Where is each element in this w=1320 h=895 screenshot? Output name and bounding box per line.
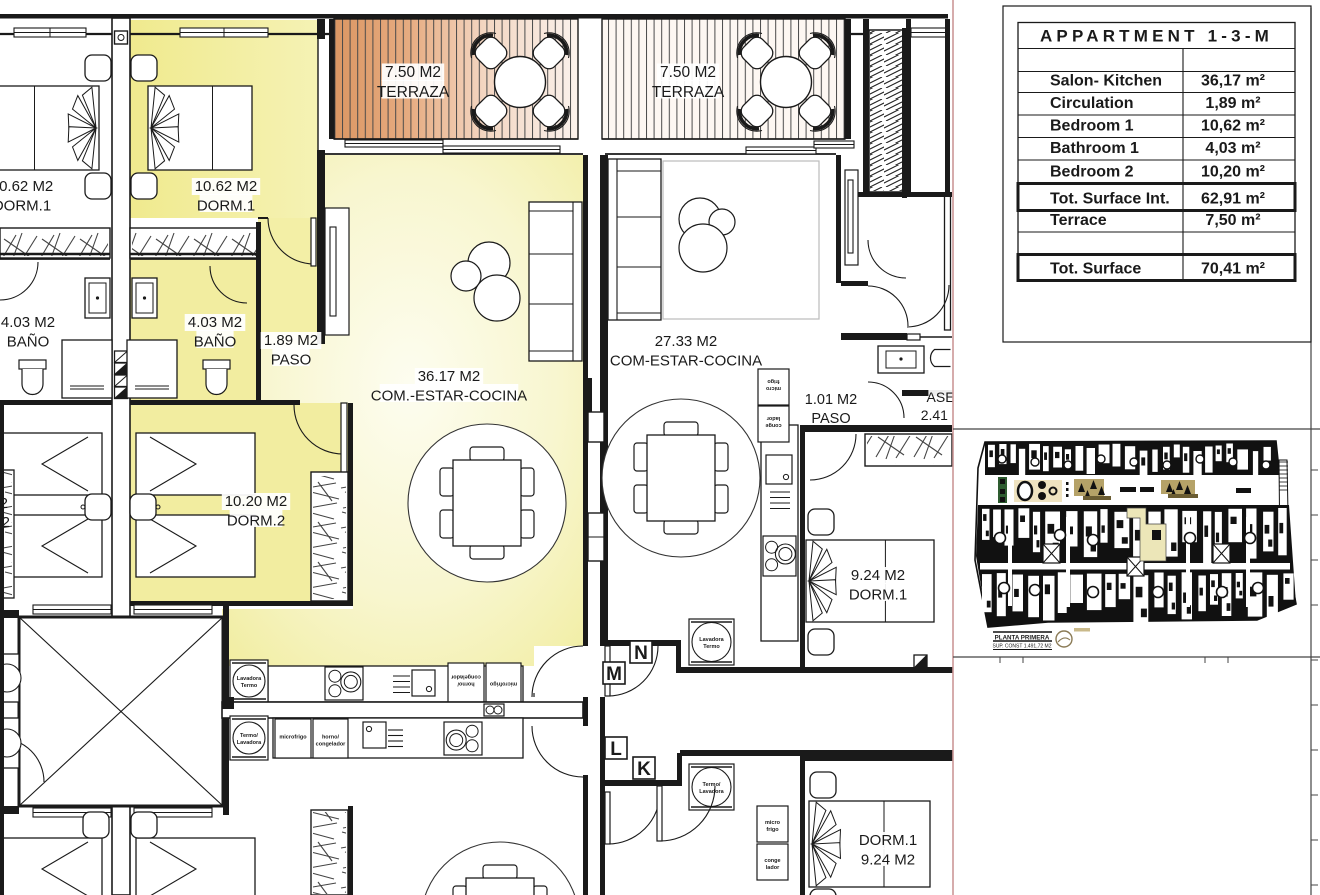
svg-text:BAÑO: BAÑO [194, 334, 237, 351]
svg-text:K: K [637, 759, 651, 780]
svg-text:27.33 M2: 27.33 M2 [655, 333, 718, 350]
svg-text:PASO: PASO [271, 352, 312, 369]
svg-text:ASEO: ASEO [927, 389, 966, 405]
svg-text:micro: micro [765, 820, 781, 826]
svg-text:N: N [634, 643, 648, 664]
svg-text:7.50 M2: 7.50 M2 [385, 64, 441, 81]
svg-text:Bathroom 1: Bathroom 1 [1050, 140, 1139, 157]
svg-text:Lavadora: Lavadora [237, 676, 262, 682]
svg-text:Bedroom 2: Bedroom 2 [1050, 164, 1134, 181]
svg-text:2: 2 [2, 514, 10, 531]
svg-text:conge: conge [764, 858, 780, 864]
svg-text:Bedroom 1: Bedroom 1 [1050, 118, 1134, 135]
svg-text:congelador: congelador [316, 742, 347, 748]
svg-text:70,41 m²: 70,41 m² [1201, 261, 1265, 278]
svg-text:Lavadora: Lavadora [699, 789, 724, 795]
svg-text:4.03 M2: 4.03 M2 [188, 314, 242, 331]
svg-text:DORM.1: DORM.1 [849, 587, 907, 604]
svg-text:lador: lador [766, 415, 780, 421]
svg-text:frigo: frigo [766, 827, 779, 833]
svg-text:PASO: PASO [811, 411, 850, 427]
svg-text:horno/: horno/ [322, 735, 340, 741]
svg-text:Salon- Kitchen: Salon- Kitchen [1050, 73, 1162, 90]
svg-text:Tot. Surface: Tot. Surface [1050, 261, 1141, 278]
svg-text:Lavadora: Lavadora [237, 740, 262, 746]
svg-text:SUP. CONST 1.491,72 M2: SUP. CONST 1.491,72 M2 [992, 644, 1051, 650]
svg-text:10.62 M2: 10.62 M2 [195, 178, 258, 195]
svg-text:9.24 M2: 9.24 M2 [851, 567, 905, 584]
svg-text:microfrigo: microfrigo [489, 681, 517, 687]
svg-text:4,03 m²: 4,03 m² [1205, 140, 1260, 157]
svg-text:TERRAZA: TERRAZA [377, 84, 450, 101]
svg-text:BAÑO: BAÑO [7, 334, 50, 351]
svg-text:10.20 M2: 10.20 M2 [225, 493, 288, 510]
svg-text:microfrigo: microfrigo [279, 735, 307, 741]
svg-text:4.03 M2: 4.03 M2 [1, 314, 55, 331]
svg-text:frigo: frigo [767, 378, 780, 384]
svg-text:Termo/: Termo/ [240, 733, 258, 739]
svg-text:COM.-ESTAR-COCINA: COM.-ESTAR-COCINA [371, 388, 527, 405]
svg-text:conge: conge [765, 422, 781, 428]
svg-text:2: 2 [0, 495, 8, 512]
svg-text:10.62 M2: 10.62 M2 [0, 178, 53, 195]
svg-text:9.24 M2: 9.24 M2 [861, 852, 915, 869]
svg-text:1,89 m²: 1,89 m² [1205, 95, 1260, 112]
svg-text:lador: lador [766, 865, 780, 871]
svg-text:Tot. Surface Int.: Tot. Surface Int. [1050, 191, 1170, 208]
svg-text:DORM.1: DORM.1 [197, 198, 255, 215]
svg-text:COM-ESTAR-COCINA: COM-ESTAR-COCINA [610, 353, 762, 370]
svg-text:36,17 m²: 36,17 m² [1201, 73, 1265, 90]
svg-text:7,50 m²: 7,50 m² [1205, 212, 1260, 229]
svg-text:1.89 M2: 1.89 M2 [264, 332, 318, 349]
svg-text:2.41 M2: 2.41 M2 [921, 407, 972, 423]
svg-text:congelador: congelador [450, 674, 481, 680]
svg-text:Terrace: Terrace [1050, 212, 1107, 229]
svg-text:10,62 m²: 10,62 m² [1201, 118, 1265, 135]
svg-text:APPARTMENT 1-3-M: APPARTMENT 1-3-M [1040, 27, 1273, 46]
svg-text:Lavadora: Lavadora [699, 637, 724, 643]
svg-text:1.01 M2: 1.01 M2 [805, 392, 857, 408]
svg-text:Termo: Termo [241, 683, 258, 689]
svg-text:DORM.1: DORM.1 [859, 832, 917, 849]
svg-text:62,91 m²: 62,91 m² [1201, 191, 1265, 208]
svg-text:Termo: Termo [703, 644, 720, 650]
svg-text:micro: micro [765, 385, 781, 391]
svg-text:horno/: horno/ [457, 681, 475, 687]
svg-text:Termo/: Termo/ [703, 782, 721, 788]
svg-text:M: M [606, 664, 622, 685]
svg-text:DORM.2: DORM.2 [227, 513, 285, 530]
svg-text:L: L [610, 739, 622, 760]
svg-text:7.50 M2: 7.50 M2 [660, 64, 716, 81]
svg-text:TERRAZA: TERRAZA [652, 84, 725, 101]
svg-text:Circulation: Circulation [1050, 95, 1134, 112]
svg-text:36.17 M2: 36.17 M2 [418, 368, 481, 385]
svg-text:10,20 m²: 10,20 m² [1201, 164, 1265, 181]
svg-text:DORM.1: DORM.1 [0, 198, 51, 215]
